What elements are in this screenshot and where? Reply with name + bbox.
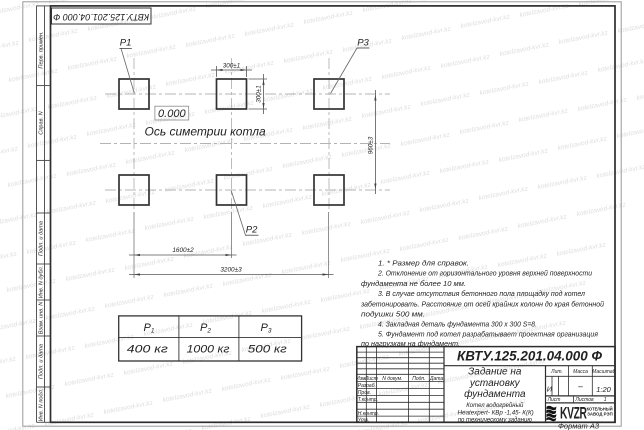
svg-text:И: И (547, 385, 553, 394)
svg-text:ЗАВОД РЭП: ЗАВОД РЭП (587, 412, 613, 417)
svg-text:kotelzavod-kvr.kz: kotelzavod-kvr.kz (0, 250, 18, 267)
svg-text:Лист: Лист (364, 376, 378, 382)
svg-text:kotelzavod-kvr.kz: kotelzavod-kvr.kz (439, 158, 490, 175)
svg-text:kotelzavod-kvr.kz: kotelzavod-kvr.kz (0, 211, 38, 228)
svg-text:kotelzavod-kvr.kz: kotelzavod-kvr.kz (5, 383, 56, 400)
svg-text:kotelzavod-kvr.kz: kotelzavod-kvr.kz (300, 325, 351, 342)
svg-text:kotelzavod-kvr.kz: kotelzavod-kvr.kz (146, 5, 197, 22)
svg-text:kotelzavod-kvr.kz: kotelzavod-kvr.kz (361, 103, 412, 120)
svg-text:фундамента не более 10 мм.: фундамента не более 10 мм. (361, 280, 466, 288)
svg-text:kotelzavod-kvr.kz: kotelzavod-kvr.kz (497, 252, 548, 269)
svg-text:kotelzavod-kvr.kz: kotelzavod-kvr.kz (281, 259, 332, 276)
svg-text:Справ. N: Справ. N (39, 110, 45, 134)
svg-text:Перв. примен.: Перв. примен. (39, 31, 45, 68)
svg-text:400 кг: 400 кг (127, 344, 169, 356)
svg-text:kotelzavod-kvr.kz: kotelzavod-kvr.kz (576, 201, 627, 218)
svg-text:КВТУ.125.201.04.000 Ф: КВТУ.125.201.04.000 Ф (457, 349, 602, 364)
svg-text:kotelzavod-kvr.kz: kotelzavod-kvr.kz (557, 135, 608, 152)
svg-text:Масса: Масса (573, 369, 588, 375)
svg-text:kotelzavod-kvr.kz: kotelzavod-kvr.kz (125, 149, 176, 166)
svg-text:kotelzavod-kvr.kz: kotelzavod-kvr.kz (556, 241, 607, 258)
svg-text:kotelzavod-kvr.kz: kotelzavod-kvr.kz (67, 55, 118, 72)
svg-text:Н.контр.: Н.контр. (358, 411, 379, 417)
svg-text:Ось симетрии котла: Ось симетрии котла (145, 125, 266, 139)
svg-text:kotelzavod-kvr.kz: kotelzavod-kvr.kz (260, 403, 311, 420)
svg-text:kotelzavod-kvr.kz: kotelzavod-kvr.kz (162, 387, 213, 404)
svg-text:kotelzavod-kvr.kz: kotelzavod-kvr.kz (577, 96, 628, 113)
svg-text:300±1: 300±1 (223, 63, 240, 70)
svg-text:kotelzavod-kvr.kz: kotelzavod-kvr.kz (45, 305, 96, 322)
svg-text:kotelzavod-kvr.kz: kotelzavod-kvr.kz (303, 9, 354, 26)
svg-text:kotelzavod-kvr.kz: kotelzavod-kvr.kz (26, 239, 77, 256)
svg-text:kotelzavod-kvr.kz: kotelzavod-kvr.kz (65, 266, 116, 283)
svg-text:kotelzavod-kvr.kz: kotelzavod-kvr.kz (478, 185, 529, 202)
svg-text:Подп. и дата: Подп. и дата (39, 344, 45, 379)
svg-text:Задание на: Задание на (468, 366, 522, 377)
svg-text:kotelzavod-kvr.kz: kotelzavod-kvr.kz (222, 271, 273, 288)
svg-text:kotelzavod-kvr.kz: kotelzavod-kvr.kz (301, 220, 352, 237)
svg-text:kotelzavod-kvr.kz: kotelzavod-kvr.kz (558, 29, 609, 46)
svg-text:kotelzavod-kvr.kz: kotelzavod-kvr.kz (339, 353, 390, 370)
svg-text:Лист: Лист (547, 397, 561, 403)
svg-text:Подп. и дата: Подп. и дата (39, 221, 45, 256)
svg-text:kotelzavod-kvr.kz: kotelzavod-kvr.kz (0, 0, 40, 17)
svg-text:kotelzavod-kvr.kz: kotelzavod-kvr.kz (28, 27, 79, 44)
svg-text:kotelzavod-kvr.kz: kotelzavod-kvr.kz (164, 177, 215, 194)
svg-text:kotelzavod-kvr.kz: kotelzavod-kvr.kz (538, 69, 589, 86)
svg-text:960±3: 960±3 (367, 136, 374, 154)
svg-text:Листов: Листов (574, 397, 594, 403)
svg-text:P3: P3 (357, 37, 369, 48)
svg-text:5. Фундамент под котел разраба: 5. Фундамент под котел разрабатывает про… (378, 331, 598, 339)
svg-text:Масштаб: Масштаб (592, 369, 616, 375)
svg-text:КВТУ.125.201.04.000 Ф: КВТУ.125.201.04.000 Ф (53, 12, 149, 22)
svg-text:kotelzavod-kvr.kz: kotelzavod-kvr.kz (499, 41, 550, 58)
svg-text:КОТЕЛЬНЫЙ: КОТЕЛЬНЫЙ (587, 405, 613, 412)
svg-text:Разраб.: Разраб. (358, 383, 376, 389)
svg-text:kotelzavod-kvr.kz: kotelzavod-kvr.kz (202, 309, 253, 326)
svg-text:kotelzavod-kvr.kz: kotelzavod-kvr.kz (519, 2, 570, 19)
svg-text:kotelzavod-kvr.kz: kotelzavod-kvr.kz (636, 85, 644, 102)
svg-text:kotelzavod-kvr.kz: kotelzavod-kvr.kz (47, 94, 98, 111)
svg-text:kotelzavod-kvr.kz: kotelzavod-kvr.kz (6, 277, 57, 294)
svg-text:kotelzavod-kvr.kz: kotelzavod-kvr.kz (163, 282, 214, 299)
svg-text:kotelzavod-kvr.kz: kotelzavod-kvr.kz (185, 32, 236, 49)
svg-text:kotelzavod-kvr.kz: kotelzavod-kvr.kz (104, 293, 155, 310)
svg-text:kotelzavod-kvr.kz: kotelzavod-kvr.kz (401, 25, 452, 42)
svg-text:Дата: Дата (429, 376, 443, 382)
svg-text:kotelzavod-kvr.kz: kotelzavod-kvr.kz (518, 107, 569, 124)
svg-text:забетонировать. Расстояние от: забетонировать. Расстояние от осей крайн… (360, 300, 604, 308)
svg-text:Инв. N дубл.: Инв. N дубл. (39, 266, 45, 298)
svg-text:2. Отклонение от горизонтально: 2. Отклонение от горизонтального уровня … (377, 270, 592, 278)
svg-text:kotelzavod-kvr.kz: kotelzavod-kvr.kz (419, 197, 470, 214)
svg-text:kotelzavod-kvr.kz: kotelzavod-kvr.kz (27, 133, 78, 150)
svg-text:500 кг: 500 кг (248, 344, 288, 356)
svg-text:P2: P2 (246, 225, 258, 236)
svg-text:kotelzavod-kvr.kz: kotelzavod-kvr.kz (44, 411, 95, 428)
svg-text:P1: P1 (144, 322, 155, 335)
svg-text:kotelzavod-kvr.kz: kotelzavod-kvr.kz (616, 123, 644, 140)
svg-text:kotelzavod-kvr.kz: kotelzavod-kvr.kz (458, 225, 509, 242)
svg-text:kotelzavod-kvr.kz: kotelzavod-kvr.kz (0, 317, 37, 334)
svg-text:kotelzavod-kvr.kz: kotelzavod-kvr.kz (282, 153, 333, 170)
svg-text:kotelzavod-kvr.kz: kotelzavod-kvr.kz (123, 360, 174, 377)
svg-text:1: 1 (604, 397, 607, 403)
svg-text:kotelzavod-kvr.kz: kotelzavod-kvr.kz (262, 193, 313, 210)
svg-text:3. В случае отсутствия бетонно: 3. В случае отсутствия бетонного пола пл… (378, 290, 585, 298)
svg-text:kotelzavod-kvr.kz: kotelzavod-kvr.kz (66, 161, 117, 178)
svg-text:kotelzavod-kvr.kz: kotelzavod-kvr.kz (460, 13, 511, 30)
svg-text:kotelzavod-kvr.kz: kotelzavod-kvr.kz (263, 87, 314, 104)
svg-text:kotelzavod-kvr.kz: kotelzavod-kvr.kz (537, 174, 588, 191)
svg-text:установку: установку (469, 378, 521, 389)
svg-text:0.000: 0.000 (158, 108, 186, 120)
svg-text:kotelzavod-kvr.kz: kotelzavod-kvr.kz (283, 48, 334, 65)
svg-text:Котел водогрейный: Котел водогрейный (466, 402, 524, 409)
svg-text:kotelzavod-kvr.kz: kotelzavod-kvr.kz (203, 204, 254, 221)
svg-text:Лит.: Лит. (550, 369, 563, 375)
svg-text:kotelzavod-kvr.kz: kotelzavod-kvr.kz (399, 236, 450, 253)
svg-text:kotelzavod-kvr.kz: kotelzavod-kvr.kz (244, 21, 295, 38)
svg-text:1600±2: 1600±2 (172, 247, 194, 254)
svg-text:подушки 500 мм.: подушки 500 мм. (361, 311, 425, 319)
svg-text:1:20: 1:20 (596, 385, 611, 394)
svg-text:Утв.: Утв. (358, 417, 369, 423)
svg-text:P1: P1 (120, 37, 132, 48)
svg-text:kotelzavod-kvr.kz: kotelzavod-kvr.kz (0, 39, 20, 56)
svg-text:kotelzavod-kvr.kz: kotelzavod-kvr.kz (459, 119, 510, 136)
svg-text:N докум.: N докум. (382, 376, 402, 382)
svg-text:3200±3: 3200±3 (220, 267, 242, 274)
svg-text:kotelzavod-kvr.kz: kotelzavod-kvr.kz (479, 80, 530, 97)
svg-text:kotelzavod-kvr.kz: kotelzavod-kvr.kz (165, 71, 216, 88)
svg-text:300±1: 300±1 (256, 85, 263, 102)
svg-text:Пров.: Пров. (358, 390, 371, 396)
svg-text:kotelzavod-kvr.kz: kotelzavod-kvr.kz (124, 255, 175, 272)
svg-text:Формат А3: Формат А3 (558, 422, 600, 430)
svg-text:kotelzavod-kvr.kz: kotelzavod-kvr.kz (103, 399, 154, 416)
svg-text:Взам. инв. N: Взам. инв. N (39, 301, 45, 335)
svg-text:kotelzavod-kvr.kz: kotelzavod-kvr.kz (440, 53, 491, 70)
svg-text:kotelzavod-kvr.kz: kotelzavod-kvr.kz (302, 115, 353, 132)
svg-text:kotelzavod-kvr.kz: kotelzavod-kvr.kz (0, 105, 39, 122)
svg-text:kotelzavod-kvr.kz: kotelzavod-kvr.kz (64, 371, 115, 388)
svg-text:KVZR: KVZR (560, 404, 587, 422)
svg-text:kotelzavod-kvr.kz: kotelzavod-kvr.kz (46, 199, 97, 216)
svg-text:kotelzavod-kvr.kz: kotelzavod-kvr.kz (8, 67, 59, 84)
svg-text:kotelzavod-kvr.kz: kotelzavod-kvr.kz (0, 145, 19, 162)
svg-text:kotelzavod-kvr.kz: kotelzavod-kvr.kz (261, 298, 312, 315)
svg-text:P3: P3 (261, 322, 272, 335)
svg-text:kotelzavod-kvr.kz: kotelzavod-kvr.kz (360, 209, 411, 226)
svg-text:kotelzavod-kvr.kz: kotelzavod-kvr.kz (597, 57, 644, 74)
svg-text:kotelzavod-kvr.kz: kotelzavod-kvr.kz (86, 121, 137, 138)
svg-text:kotelzavod-kvr.kz: kotelzavod-kvr.kz (126, 43, 177, 60)
svg-text:Т.контр.: Т.контр. (358, 397, 378, 403)
svg-text:1. * Размер для справок.: 1. * Размер для справок. (378, 259, 469, 267)
svg-text:Heatexpert- КВр -1,45- К(К): Heatexpert- КВр -1,45- К(К) (458, 410, 534, 416)
svg-text:фундамента: фундамента (464, 388, 526, 400)
svg-text:1000 кг: 1000 кг (187, 344, 231, 356)
svg-text:kotelzavod-kvr.kz: kotelzavod-kvr.kz (596, 163, 644, 180)
svg-text:kotelzavod-kvr.kz: kotelzavod-kvr.kz (517, 213, 568, 230)
svg-text:kotelzavod-kvr.kz: kotelzavod-kvr.kz (420, 91, 471, 108)
svg-text:kotelzavod-kvr.kz: kotelzavod-kvr.kz (144, 215, 195, 232)
svg-text:4. Закладная деталь фундамента: 4. Закладная деталь фундамента 300 x 300… (378, 321, 537, 329)
svg-text:kotelzavod-kvr.kz: kotelzavod-kvr.kz (184, 137, 235, 154)
svg-text:kotelzavod-kvr.kz: kotelzavod-kvr.kz (0, 355, 17, 372)
svg-text:kotelzavod-kvr.kz: kotelzavod-kvr.kz (380, 169, 431, 186)
svg-text:Подп.: Подп. (412, 376, 425, 382)
svg-text:–: – (577, 382, 583, 391)
svg-text:kotelzavod-kvr.kz: kotelzavod-kvr.kz (498, 147, 549, 164)
svg-text:kotelzavod-kvr.kz: kotelzavod-kvr.kz (400, 131, 451, 148)
svg-text:по техническому заданию: по техническому заданию (458, 417, 533, 423)
svg-text:kotelzavod-kvr.kz: kotelzavod-kvr.kz (85, 227, 136, 244)
svg-text:Инв. N подл.: Инв. N подл. (39, 389, 45, 422)
svg-text:kotelzavod-kvr.kz: kotelzavod-kvr.kz (381, 64, 432, 81)
svg-text:kotelzavod-kvr.kz: kotelzavod-kvr.kz (221, 376, 272, 393)
svg-text:kotelzavod-kvr.kz: kotelzavod-kvr.kz (280, 365, 331, 382)
